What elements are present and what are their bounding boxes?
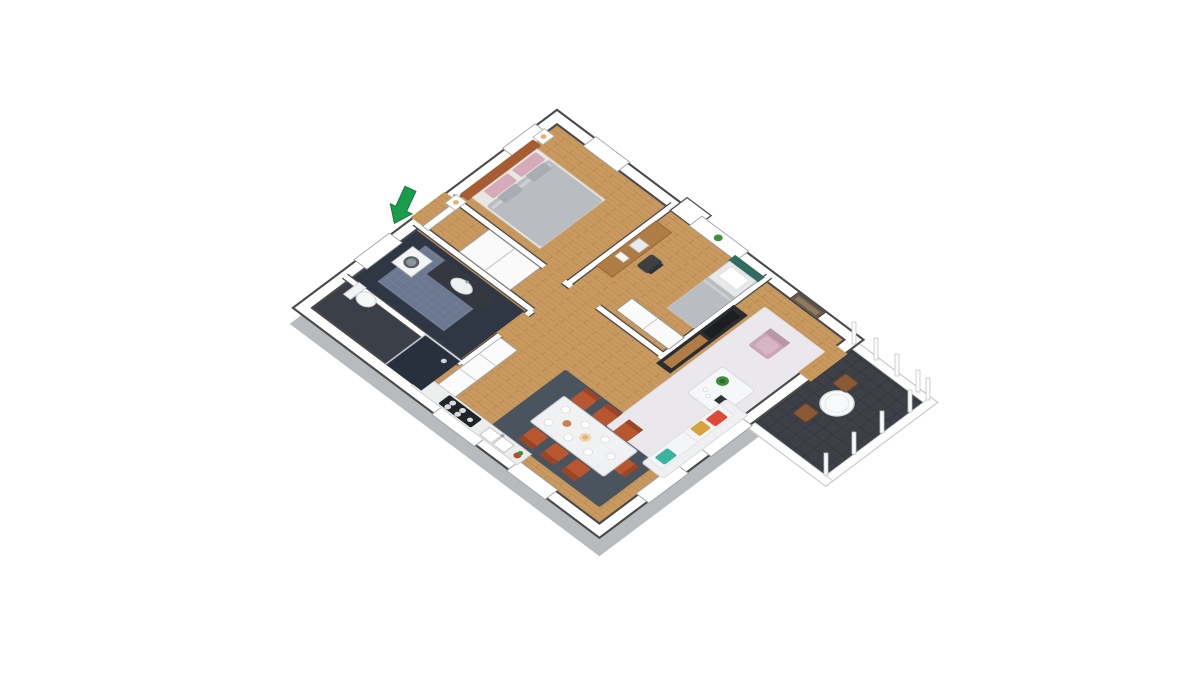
apartment-plan (290, 104, 949, 598)
floor-plan-canvas (0, 0, 1200, 675)
floor-plan-render (0, 0, 1200, 675)
